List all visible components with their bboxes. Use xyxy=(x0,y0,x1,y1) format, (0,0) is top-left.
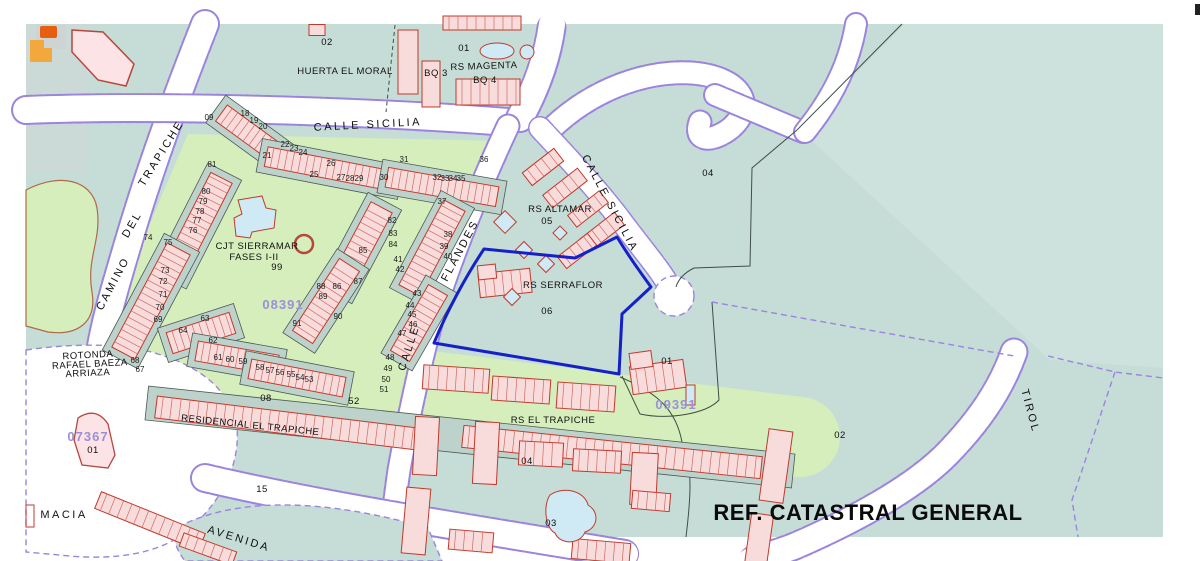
area-label: 52 xyxy=(348,396,360,407)
parcel-number: 30 xyxy=(380,173,389,182)
parcel-number: 49 xyxy=(384,364,393,373)
parcel-number: 87 xyxy=(354,277,363,286)
area-label: 04 xyxy=(521,456,533,467)
magenta-pool-small xyxy=(520,45,534,59)
area-label: HUERTA EL MORAL xyxy=(297,66,393,77)
parcel-number: 62 xyxy=(209,336,218,345)
parcel-number: 58 xyxy=(256,363,265,372)
parcel-number: 45 xyxy=(408,310,417,319)
parcel-number: 74 xyxy=(144,233,153,242)
area-label: 01 xyxy=(87,445,99,456)
building-block xyxy=(448,529,494,553)
building-block xyxy=(398,30,418,94)
building-block xyxy=(422,365,490,394)
parcel-number: 25 xyxy=(310,170,319,179)
parcel-number: 77 xyxy=(193,216,202,225)
parcel-number: 60 xyxy=(226,355,235,364)
parcel-number: 90 xyxy=(334,312,343,321)
parcel-number: 73 xyxy=(161,266,170,275)
parcel-number: 69 xyxy=(154,315,163,324)
area-label: 02 xyxy=(834,430,846,441)
parcel-number: 41 xyxy=(394,255,403,264)
orange-red-icon xyxy=(40,26,57,38)
building-block xyxy=(309,25,325,36)
area-label: BQ 4 xyxy=(473,75,497,86)
parcel-number: 86 xyxy=(333,282,342,291)
edge-mark xyxy=(1195,4,1200,15)
parcel-number: 48 xyxy=(386,353,395,362)
area-label: 04 xyxy=(702,168,714,179)
parcel-number: 37 xyxy=(438,197,447,206)
parcel-number: 76 xyxy=(189,226,198,235)
building-block xyxy=(572,449,621,473)
parcel-number: 44 xyxy=(406,301,415,310)
parcel-number: 70 xyxy=(156,303,165,312)
parcel-number: 42 xyxy=(396,265,405,274)
street-label: MACIA xyxy=(40,509,87,521)
area-label: 08 xyxy=(260,393,272,404)
parcel-number: 40 xyxy=(444,252,453,261)
street-calle-sicilia-west xyxy=(26,108,508,122)
parcel-number: 75 xyxy=(164,238,173,247)
parcel-number: 39 xyxy=(440,242,449,251)
parcel-number: 20 xyxy=(259,122,268,131)
parcel-number: 63 xyxy=(201,314,210,323)
parcel-number: 84 xyxy=(389,240,398,249)
parcel-number: 35 xyxy=(457,174,466,183)
parcel-number: 26 xyxy=(327,159,336,168)
parcel-number: 31 xyxy=(400,155,409,164)
parcel-number: 29 xyxy=(355,174,364,183)
parcel-number: 88 xyxy=(317,282,326,291)
parcel-number: 47 xyxy=(398,329,407,338)
area-label: 05 xyxy=(541,216,553,227)
parcel-number: 85 xyxy=(359,246,368,255)
area-label: RS SERRAFLOR xyxy=(523,280,603,291)
parcel-number: 43 xyxy=(413,289,422,298)
cadastral-ref-number: 08391 xyxy=(262,297,303,312)
parcel-number: 72 xyxy=(159,277,168,286)
parcel-number: 83 xyxy=(389,229,398,238)
parcel-number: 64 xyxy=(179,326,188,335)
area-label: 03 xyxy=(545,518,557,529)
building-block xyxy=(477,264,496,280)
parcel-number: 38 xyxy=(444,230,453,239)
parcel-number: 80 xyxy=(202,187,211,196)
cadastral-ref-number: 07367 xyxy=(67,429,108,444)
ref-catastral-general-label: REF. CATASTRAL GENERAL xyxy=(713,500,1022,525)
parcel-number: 68 xyxy=(131,356,140,365)
parcel-number: 24 xyxy=(299,148,308,157)
building-block xyxy=(472,421,499,484)
area-label: 01 xyxy=(661,356,673,367)
area-label: RS MAGENTA xyxy=(450,60,518,73)
area-label: RS ALTAMAR xyxy=(528,204,592,215)
cadastral-map-page: CALLE SICILIACALLE SICILIACALLEFLANDESCA… xyxy=(0,0,1200,561)
parcel-number: 59 xyxy=(239,357,248,366)
parcel-number: 51 xyxy=(380,385,389,394)
building-block xyxy=(631,490,670,511)
area-label: BQ 3 xyxy=(424,68,448,79)
parcel-number: 78 xyxy=(196,207,205,216)
area-label: ARRIAZA xyxy=(65,367,110,380)
area-label: 06 xyxy=(541,306,553,317)
cadastral-map-canvas[interactable]: CALLE SICILIACALLE SICILIACALLEFLANDESCA… xyxy=(0,0,1200,561)
parcel-number: 89 xyxy=(319,292,328,301)
parcel-number: 82 xyxy=(388,216,397,225)
parcel-number: 09 xyxy=(205,113,214,122)
area-label: 02 xyxy=(321,37,333,48)
building-block xyxy=(412,416,439,475)
cul-de-sac xyxy=(654,276,694,316)
parcel-number: 46 xyxy=(409,320,418,329)
parcel-number: 67 xyxy=(136,365,145,374)
area-label: 01 xyxy=(458,43,470,54)
building-block xyxy=(491,376,551,404)
area-label: CJT SIERRAMAR xyxy=(216,241,299,252)
parcel-number: 79 xyxy=(199,197,208,206)
parcel-number: 81 xyxy=(208,160,217,169)
area-label: 99 xyxy=(271,262,283,273)
building-block xyxy=(443,16,521,30)
parcel-number: 50 xyxy=(382,375,391,384)
cadastral-ref-number: 09391 xyxy=(655,397,696,412)
area-label: RS EL TRAPICHE xyxy=(511,415,596,426)
parcel-number: 57 xyxy=(266,366,275,375)
area-label: 15 xyxy=(256,484,268,495)
parcel-number: 61 xyxy=(214,353,223,362)
green-park-left xyxy=(26,180,98,332)
parcel-number: 53 xyxy=(305,375,314,384)
building-block xyxy=(629,351,653,370)
parcel-number: 71 xyxy=(159,290,168,299)
parcel-number: 55 xyxy=(287,370,296,379)
parcel-number: 21 xyxy=(263,151,272,160)
parcel-number: 91 xyxy=(293,319,302,328)
parcel-number: 36 xyxy=(480,155,489,164)
building-block xyxy=(556,382,616,412)
magenta-pool xyxy=(480,43,514,59)
building-block xyxy=(401,487,431,555)
parcel-number: 54 xyxy=(296,373,305,382)
parcel-number: 56 xyxy=(276,368,285,377)
